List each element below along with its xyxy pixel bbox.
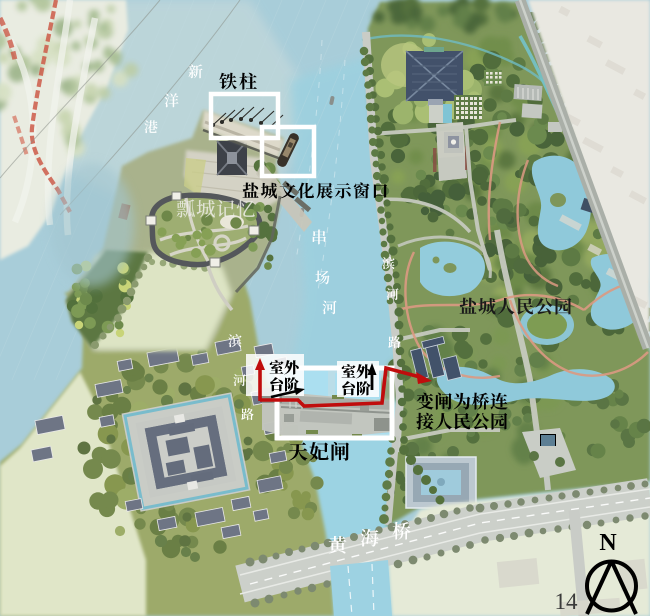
- svg-text:N: N: [599, 530, 617, 556]
- svg-text:14: 14: [555, 589, 579, 614]
